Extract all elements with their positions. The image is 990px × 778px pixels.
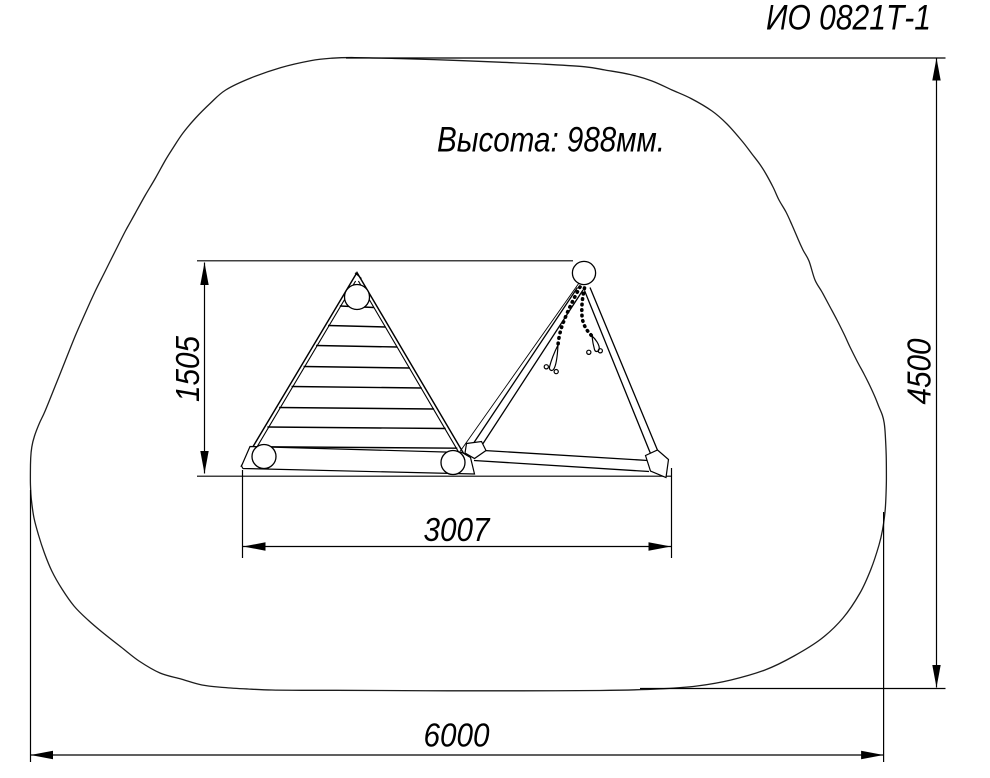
svg-text:Высота: 988мм.: Высота: 988мм.: [437, 120, 665, 160]
svg-text:6000: 6000: [424, 718, 490, 755]
svg-text:3007: 3007: [424, 512, 491, 549]
svg-text:4500: 4500: [902, 338, 939, 404]
svg-text:1505: 1505: [170, 336, 207, 402]
svg-text:ИО 0821Т-1: ИО 0821Т-1: [766, 0, 931, 38]
